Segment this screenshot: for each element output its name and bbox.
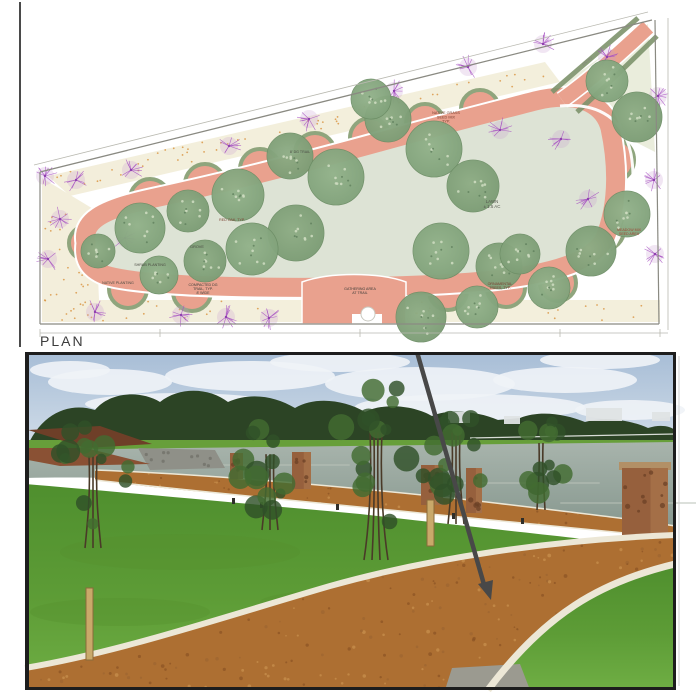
ornamental-tree bbox=[645, 168, 663, 191]
underplant-dot bbox=[432, 94, 434, 96]
distant-house bbox=[586, 408, 622, 421]
foliage-cluster bbox=[328, 414, 354, 440]
granite-speckle bbox=[641, 547, 644, 550]
granite-speckle bbox=[216, 482, 218, 484]
underplant-dot bbox=[70, 171, 72, 173]
underplant-dot bbox=[82, 286, 84, 288]
granite-speckle bbox=[431, 600, 433, 602]
underplant-dot bbox=[44, 299, 46, 301]
wood-stake bbox=[86, 588, 93, 660]
granite-speckle bbox=[516, 525, 518, 527]
underplant-dot bbox=[322, 121, 324, 123]
granite-speckle bbox=[563, 549, 565, 551]
shade-tree bbox=[167, 190, 209, 232]
granite-speckle bbox=[493, 604, 496, 607]
foliage-cluster bbox=[387, 396, 399, 408]
underplant-dot bbox=[557, 309, 559, 311]
underplant-dot bbox=[81, 284, 83, 286]
underplant-dot bbox=[201, 142, 203, 144]
granite-speckle bbox=[564, 574, 568, 578]
granite-speckle bbox=[153, 662, 156, 665]
granite-speckle bbox=[218, 480, 220, 482]
granite-speckle bbox=[287, 678, 290, 681]
cloud bbox=[30, 361, 110, 379]
underplant-dot bbox=[187, 148, 189, 150]
granite-speckle bbox=[538, 584, 540, 586]
granite-speckle bbox=[384, 683, 386, 685]
underplant-dot bbox=[73, 308, 75, 310]
granite-speckle bbox=[285, 661, 287, 663]
granite-speckle bbox=[462, 564, 465, 567]
underplant-dot bbox=[554, 317, 556, 319]
underplant-dot bbox=[216, 149, 218, 151]
granite-speckle bbox=[325, 508, 327, 510]
foliage-cluster bbox=[78, 420, 92, 434]
plan-annotation: SHRUB PLANTING bbox=[134, 263, 166, 267]
granite-speckle bbox=[483, 643, 486, 646]
granite-speckle bbox=[239, 677, 243, 681]
underplant-dot bbox=[468, 82, 470, 84]
granite-speckle bbox=[241, 669, 244, 672]
granite-speckle bbox=[109, 672, 112, 675]
underplant-dot bbox=[147, 159, 149, 161]
foliage-cluster bbox=[76, 495, 92, 511]
granite-speckle bbox=[446, 583, 450, 587]
granite-speckle bbox=[348, 647, 351, 650]
granite-speckle bbox=[328, 493, 330, 495]
granite-speckle bbox=[120, 489, 122, 491]
underplant-dot bbox=[44, 228, 46, 230]
granite-speckle bbox=[659, 541, 662, 544]
granite-speckle bbox=[65, 675, 68, 678]
plan-annotation: 8' DG TRAIL bbox=[290, 150, 310, 154]
foliage-cluster bbox=[357, 409, 380, 432]
granite-speckle bbox=[290, 660, 292, 662]
granite-speckle bbox=[380, 620, 383, 623]
foliage-cluster bbox=[394, 446, 420, 472]
granite-speckle bbox=[365, 510, 368, 513]
granite-speckle bbox=[458, 577, 461, 580]
granite-speckle bbox=[541, 594, 544, 597]
underplant-dot bbox=[143, 313, 145, 315]
underplant-dot bbox=[126, 317, 128, 319]
granite-speckle bbox=[264, 666, 267, 669]
granite-speckle bbox=[125, 673, 128, 676]
granite-speckle bbox=[496, 638, 498, 640]
granite-speckle bbox=[186, 653, 190, 657]
granite-speckle bbox=[565, 522, 568, 525]
granite-speckle bbox=[619, 548, 622, 551]
foliage-cluster bbox=[61, 423, 79, 441]
shade-tree bbox=[140, 256, 178, 294]
shade-tree bbox=[267, 133, 313, 179]
plan-annotation: LAWN± 1.5 AC bbox=[484, 199, 501, 209]
granite-speckle bbox=[489, 566, 491, 568]
shade-tree bbox=[413, 223, 469, 279]
foliage-cluster bbox=[265, 454, 280, 469]
granite-speckle bbox=[642, 551, 644, 553]
underplant-dot bbox=[335, 118, 337, 120]
granite-speckle bbox=[469, 632, 472, 635]
granite-speckle bbox=[219, 631, 222, 634]
granite-speckle bbox=[536, 510, 538, 512]
granite-speckle bbox=[352, 646, 355, 649]
granite-speckle bbox=[264, 673, 266, 675]
underplant-dot bbox=[601, 319, 603, 321]
granite-speckle bbox=[529, 582, 531, 584]
underplant-dot bbox=[102, 320, 104, 322]
granite-speckle bbox=[537, 557, 539, 559]
granite-speckle bbox=[457, 564, 459, 566]
wood-stake bbox=[427, 500, 434, 546]
granite-speckle bbox=[546, 574, 548, 576]
granite-speckle bbox=[223, 668, 226, 671]
granite-speckle bbox=[387, 678, 389, 680]
underplant-dot bbox=[120, 174, 122, 176]
underplant-dot bbox=[50, 230, 52, 232]
plan-annotation: ORNAMENTALTREES, TYP. bbox=[488, 282, 513, 290]
shade-tree bbox=[351, 79, 391, 119]
granite-speckle bbox=[416, 646, 419, 649]
granite-speckle bbox=[278, 632, 281, 635]
underplant-dot bbox=[70, 310, 72, 312]
underplant-dot bbox=[542, 76, 544, 78]
underplant-dot bbox=[596, 304, 598, 306]
underplant-dot bbox=[524, 79, 526, 81]
granite-speckle bbox=[543, 558, 546, 561]
granite-speckle bbox=[619, 566, 622, 569]
granite-speckle bbox=[512, 576, 515, 579]
underplant-dot bbox=[78, 272, 80, 274]
granite-speckle bbox=[319, 674, 321, 676]
granite-speckle bbox=[293, 607, 295, 609]
foliage-cluster bbox=[266, 434, 280, 448]
granite-speckle bbox=[175, 667, 177, 669]
granite-speckle bbox=[140, 677, 142, 679]
granite-speckle bbox=[484, 603, 486, 605]
granite-speckle bbox=[390, 587, 392, 589]
granite-speckle bbox=[341, 682, 344, 685]
underplant-dot bbox=[173, 147, 175, 149]
foliage-cluster bbox=[380, 424, 391, 435]
granite-speckle bbox=[369, 636, 372, 639]
shade-tree bbox=[226, 223, 278, 275]
distant-house bbox=[652, 412, 670, 421]
foliage-cluster bbox=[245, 466, 269, 490]
granite-speckle bbox=[554, 582, 556, 584]
granite-speckle bbox=[539, 576, 541, 578]
granite-speckle bbox=[164, 668, 167, 671]
underplant-dot bbox=[499, 80, 501, 82]
shade-tree bbox=[528, 267, 570, 309]
granite-speckle bbox=[428, 652, 432, 656]
foliage-cluster bbox=[262, 500, 282, 520]
granite-speckle bbox=[439, 606, 442, 609]
granite-speckle bbox=[654, 548, 657, 551]
granite-speckle bbox=[421, 578, 424, 581]
underplant-dot bbox=[67, 267, 69, 269]
underplant-dot bbox=[56, 176, 58, 178]
cloud bbox=[493, 367, 637, 393]
granite-speckle bbox=[498, 618, 500, 620]
rock-dot bbox=[150, 458, 153, 461]
bollard bbox=[452, 513, 455, 519]
underplant-dot bbox=[244, 138, 246, 140]
granite-speckle bbox=[285, 635, 287, 637]
granite-speckle bbox=[138, 655, 141, 658]
granite-speckle bbox=[80, 666, 82, 668]
granite-speckle bbox=[438, 675, 441, 678]
underplant-dot bbox=[84, 301, 86, 303]
granite-speckle bbox=[109, 486, 111, 488]
foliage-cluster bbox=[462, 410, 479, 427]
underplant-dot bbox=[147, 301, 149, 303]
granite-speckle bbox=[516, 628, 518, 630]
foliage-cluster bbox=[246, 426, 261, 441]
granite-speckle bbox=[327, 488, 329, 490]
granite-speckle bbox=[506, 524, 507, 525]
plan-annotation: GROVE bbox=[190, 245, 204, 249]
granite-speckle bbox=[152, 490, 155, 493]
underplant-dot bbox=[156, 305, 158, 307]
underplant-dot bbox=[80, 303, 82, 305]
shade-tree bbox=[586, 60, 628, 102]
rock-dot bbox=[209, 457, 212, 460]
granite-speckle bbox=[423, 684, 426, 687]
granite-speckle bbox=[510, 614, 512, 616]
granite-speckle bbox=[62, 676, 65, 679]
granite-speckle bbox=[499, 644, 501, 646]
granite-speckle bbox=[399, 633, 401, 635]
granite-speckle bbox=[160, 477, 162, 479]
granite-speckle bbox=[479, 657, 481, 659]
shade-tree bbox=[612, 92, 662, 142]
granite-speckle bbox=[256, 661, 258, 663]
granite-speckle bbox=[328, 607, 330, 609]
foliage-cluster bbox=[56, 439, 80, 463]
granite-speckle bbox=[518, 579, 520, 581]
park-photo bbox=[0, 352, 696, 696]
granite-speckle bbox=[327, 496, 330, 499]
plaza-feature bbox=[361, 307, 375, 321]
foliage-cluster bbox=[273, 472, 295, 494]
foliage-cluster bbox=[546, 470, 561, 485]
granite-speckle bbox=[362, 617, 365, 620]
lawn-shade-patch bbox=[30, 598, 210, 626]
underplant-dot bbox=[633, 316, 635, 318]
granite-speckle bbox=[379, 676, 381, 678]
granite-speckle bbox=[640, 560, 642, 562]
granite-speckle bbox=[456, 581, 459, 584]
foliage-cluster bbox=[545, 426, 556, 437]
granite-speckle bbox=[488, 611, 490, 613]
granite-speckle bbox=[140, 492, 141, 493]
granite-speckle bbox=[433, 632, 436, 635]
underplant-dot bbox=[182, 146, 184, 148]
granite-speckle bbox=[116, 666, 119, 669]
granite-speckle bbox=[399, 654, 402, 657]
granite-speckle bbox=[443, 679, 445, 681]
foliage-cluster bbox=[544, 460, 555, 471]
underplant-dot bbox=[456, 84, 458, 86]
granite-speckle bbox=[161, 664, 165, 668]
shade-tree bbox=[81, 234, 115, 268]
foliage-cluster bbox=[519, 471, 538, 490]
granite-speckle bbox=[205, 658, 209, 662]
plan-title: PLAN bbox=[40, 333, 85, 349]
granite-speckle bbox=[279, 621, 281, 623]
foliage-cluster bbox=[389, 381, 405, 397]
foliage-cluster bbox=[473, 473, 488, 488]
granite-speckle bbox=[626, 563, 628, 565]
plan-annotation: RED OAK, TYP. bbox=[219, 218, 245, 222]
underplant-dot bbox=[142, 165, 144, 167]
underplant-dot bbox=[87, 284, 89, 286]
granite-speckle bbox=[247, 618, 250, 621]
underplant-dot bbox=[59, 229, 61, 231]
underplant-dot bbox=[177, 159, 179, 161]
underplant-dot bbox=[209, 310, 211, 312]
underplant-dot bbox=[320, 128, 322, 130]
bollard bbox=[232, 498, 235, 504]
granite-speckle bbox=[127, 676, 130, 679]
underplant-dot bbox=[74, 317, 76, 319]
granite-speckle bbox=[284, 677, 287, 680]
granite-speckle bbox=[103, 672, 105, 674]
granite-speckle bbox=[267, 675, 270, 678]
granite-speckle bbox=[436, 648, 439, 651]
granite-speckle bbox=[565, 513, 567, 515]
underplant-dot bbox=[506, 75, 508, 77]
foliage-cluster bbox=[87, 518, 98, 529]
underplant-dot bbox=[164, 149, 166, 151]
rock-dot bbox=[162, 460, 165, 463]
granite-speckle bbox=[581, 544, 584, 547]
underplant-dot bbox=[191, 161, 193, 163]
underplant-dot bbox=[336, 120, 338, 122]
underplant-dot bbox=[206, 313, 208, 315]
granite-speckle bbox=[407, 602, 410, 605]
granite-speckle bbox=[547, 554, 551, 558]
rock-dot bbox=[190, 455, 193, 458]
granite-speckle bbox=[514, 626, 516, 628]
granite-speckle bbox=[306, 643, 309, 646]
granite-speckle bbox=[412, 607, 415, 610]
underplant-dot bbox=[157, 152, 159, 154]
granite-speckle bbox=[303, 683, 305, 685]
shade-tree bbox=[396, 292, 446, 342]
granite-speckle bbox=[382, 576, 384, 578]
distant-house bbox=[504, 416, 520, 424]
foliage-cluster bbox=[351, 446, 370, 465]
underplant-dot bbox=[257, 308, 259, 310]
granite-speckle bbox=[149, 681, 152, 684]
granite-speckle bbox=[421, 668, 423, 670]
granite-speckle bbox=[264, 625, 267, 628]
underplant-dot bbox=[436, 94, 438, 96]
granite-speckle bbox=[398, 506, 401, 509]
shade-tree bbox=[456, 286, 498, 328]
granite-speckle bbox=[507, 604, 509, 606]
underplant-dot bbox=[203, 151, 205, 153]
underplant-dot bbox=[59, 249, 61, 251]
granite-speckle bbox=[385, 503, 387, 505]
foliage-cluster bbox=[467, 438, 481, 452]
foliage-cluster bbox=[121, 460, 134, 473]
underplant-dot bbox=[511, 86, 513, 88]
rock-dot bbox=[167, 451, 170, 454]
foliage-cluster bbox=[518, 421, 537, 440]
granite-speckle bbox=[548, 580, 551, 583]
lawn-shade-patch bbox=[60, 534, 300, 570]
stone-column bbox=[619, 462, 671, 538]
underplant-dot bbox=[56, 294, 58, 296]
site-plan-drawing: NATIVE GRASSSEED MIXTYP.8' DG TRAILLAWN±… bbox=[0, 0, 696, 352]
underplant-dot bbox=[81, 274, 83, 276]
underplant-dot bbox=[182, 154, 184, 156]
foliage-cluster bbox=[356, 472, 375, 491]
underplant-dot bbox=[75, 292, 77, 294]
granite-speckle bbox=[347, 673, 349, 675]
underplant-dot bbox=[420, 98, 422, 100]
shade-tree bbox=[500, 234, 540, 274]
granite-speckle bbox=[272, 664, 275, 667]
composite-figure: NATIVE GRASSSEED MIXTYP.8' DG TRAILLAWN±… bbox=[0, 0, 696, 696]
granite-speckle bbox=[321, 654, 324, 657]
granite-speckle bbox=[228, 488, 230, 490]
granite-speckle bbox=[329, 487, 331, 489]
granite-speckle bbox=[523, 553, 526, 556]
granite-speckle bbox=[527, 527, 528, 528]
foliage-cluster bbox=[362, 379, 385, 402]
underplant-dot bbox=[337, 123, 339, 125]
ornamental-tree bbox=[36, 167, 57, 187]
granite-speckle bbox=[424, 664, 427, 667]
rock-dot bbox=[196, 454, 199, 457]
granite-speckle bbox=[382, 634, 385, 637]
underplant-dot bbox=[514, 74, 516, 76]
plan-annotation: MEADOW MIXSEED AREA bbox=[617, 228, 642, 236]
granite-speckle bbox=[635, 567, 638, 570]
granite-speckle bbox=[442, 627, 445, 630]
granite-speckle bbox=[478, 588, 481, 591]
granite-speckle bbox=[307, 497, 309, 499]
granite-speckle bbox=[363, 674, 366, 677]
granite-speckle bbox=[533, 555, 535, 557]
shade-tree bbox=[115, 203, 165, 253]
underplant-dot bbox=[603, 308, 605, 310]
ornamental-tree bbox=[645, 245, 665, 265]
granite-speckle bbox=[514, 639, 517, 642]
granite-speckle bbox=[239, 657, 241, 659]
granite-speckle bbox=[596, 561, 599, 564]
underplant-dot bbox=[66, 313, 68, 315]
underplant-dot bbox=[60, 175, 62, 177]
plan-annotation: NATIVE PLANTING bbox=[102, 281, 134, 285]
granite-speckle bbox=[433, 580, 435, 582]
granite-speckle bbox=[426, 603, 429, 606]
underplant-dot bbox=[111, 169, 113, 171]
underplant-dot bbox=[61, 319, 63, 321]
underplant-dot bbox=[63, 279, 65, 281]
granite-speckle bbox=[59, 670, 62, 673]
granite-speckle bbox=[135, 482, 136, 483]
underplant-dot bbox=[50, 294, 52, 296]
underplant-dot bbox=[547, 312, 549, 314]
shade-tree bbox=[566, 226, 616, 276]
granite-speckle bbox=[150, 488, 152, 490]
granite-speckle bbox=[412, 610, 415, 613]
